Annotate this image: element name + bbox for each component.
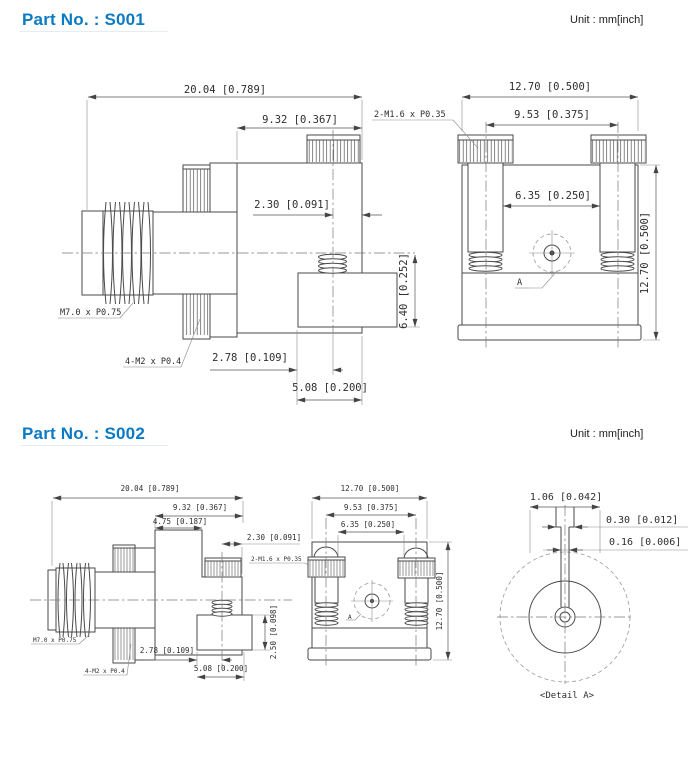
dim-bore: 1.06 [0.042] <box>530 492 602 503</box>
stud-block <box>298 273 397 327</box>
dim-front-width: 12.70 [0.500] <box>341 484 400 493</box>
dim-front-height: 12.70 [0.500] <box>435 572 444 631</box>
dim-stud-height: 6.40 [0.252] <box>398 253 410 329</box>
left-screw-spring <box>469 252 502 271</box>
s001-drawing: 20.04 [0.789] 9.32 [0.367] 2.30 [0.091] … <box>0 60 698 410</box>
dim-overall-width: 20.04 [0.789] <box>121 484 180 493</box>
dim-stud-height: 2.50 [0.098] <box>269 605 278 659</box>
s001-front-view: A <box>458 122 646 348</box>
label-thread-spec: M7.0 x P0.75 <box>33 637 77 644</box>
title-divider-s002 <box>20 445 168 446</box>
part-title-s001: Part No. : S001 <box>22 10 145 30</box>
label-nut-thread-spec: 4-M2 x P0.4 <box>85 668 125 675</box>
left-screw-spring <box>315 603 338 625</box>
title-divider-s001 <box>20 31 168 32</box>
dim-front-height: 12.70 [0.500] <box>639 212 651 294</box>
dim-inner-spacing: 6.35 [0.250] <box>515 190 591 202</box>
dim-stud-offset: 2.78 [0.109] <box>212 352 288 364</box>
label-thread-spec: M7.0 x P0.75 <box>60 308 121 318</box>
stud-block <box>197 615 252 650</box>
datasheet-page: Part No. : S001 Unit : mm[inch] <box>0 0 698 770</box>
detail-caption: <Detail A> <box>540 691 595 701</box>
dim-body-width: 9.32 [0.367] <box>262 114 338 126</box>
dim-step-width: 4.75 [0.187] <box>153 517 207 526</box>
dim-screw-offset: 2.30 [0.091] <box>254 199 330 211</box>
part-title-s002: Part No. : S002 <box>22 424 145 444</box>
detail-ref-label: A <box>517 278 522 288</box>
right-screw-spring <box>405 603 428 625</box>
dim-stud-width: 5.08 [0.200] <box>194 664 248 673</box>
unit-label-s001: Unit : mm[inch] <box>570 14 643 26</box>
label-nut-thread-spec: 4-M2 x P0.4 <box>125 357 181 367</box>
dim-screw-spacing: 9.53 [0.375] <box>344 503 398 512</box>
unit-label-s002: Unit : mm[inch] <box>570 428 643 440</box>
stud-spring <box>319 254 347 273</box>
s002-front-view: A <box>308 518 435 666</box>
dim-front-width: 12.70 [0.500] <box>509 81 591 93</box>
dim-overall-width: 20.04 [0.789] <box>184 84 266 96</box>
label-screw-thread-spec: 2-M1.6 x P0.35 <box>251 556 302 563</box>
dim-pin: 0.30 [0.012] <box>606 515 678 526</box>
dim-body-width: 9.32 [0.367] <box>173 503 227 512</box>
dim-stud-offset: 2.78 [0.109] <box>140 646 194 655</box>
right-screw-spring <box>601 252 634 271</box>
s002-drawing: 20.04 [0.789] 9.32 [0.367] 4.75 [0.187] … <box>0 460 698 770</box>
label-screw-thread-spec: 2-M1.6 x P0.35 <box>374 110 446 120</box>
base-plate <box>308 648 431 660</box>
base-plate <box>458 325 641 340</box>
dim-inner-spacing: 6.35 [0.250] <box>341 520 395 529</box>
dim-center-pin: 0.16 [0.006] <box>609 537 681 548</box>
dim-stud-width: 5.08 [0.200] <box>292 382 368 394</box>
s002-detail-view: 1.06 [0.042] 0.30 [0.012] 0.16 [0.006] <… <box>497 492 688 701</box>
dim-screw-spacing: 9.53 [0.375] <box>514 109 590 121</box>
dim-screw-offset: 2.30 [0.091] <box>247 533 301 542</box>
